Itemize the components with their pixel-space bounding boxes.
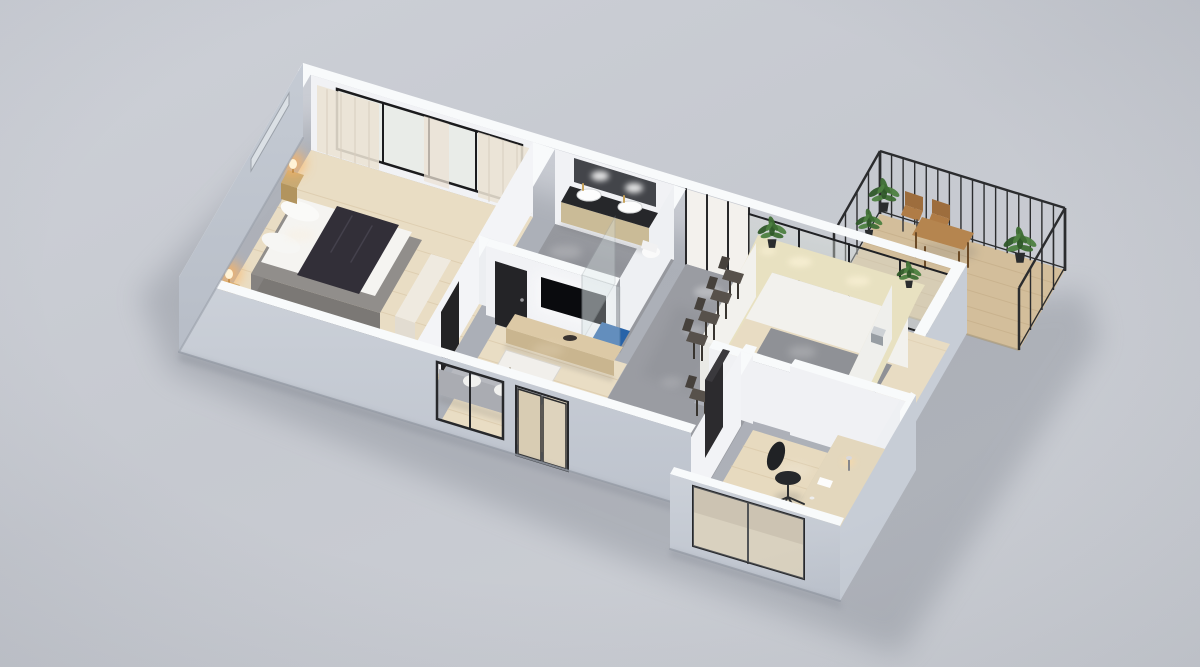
light-pool	[788, 346, 816, 358]
mirror-light	[625, 183, 643, 193]
floor-plan-svg	[0, 0, 1200, 667]
counter-light	[760, 247, 776, 255]
sofa-pillow	[463, 375, 481, 387]
mirror-light	[591, 171, 609, 181]
balcony-plant	[867, 177, 901, 212]
light-pool	[661, 377, 683, 387]
floor-plan-render	[0, 0, 1200, 667]
sink-basin	[577, 189, 601, 201]
light-pool	[285, 229, 315, 241]
curtain	[424, 116, 449, 189]
bowl	[563, 335, 577, 341]
light-pool	[550, 245, 582, 259]
slider-pane	[518, 389, 541, 461]
counter-light	[788, 257, 812, 267]
desk-lamp-head	[846, 456, 852, 460]
light-pool	[532, 343, 564, 357]
mouse	[810, 497, 815, 500]
office-chair-seat	[775, 471, 801, 485]
slider-pane	[543, 397, 566, 469]
counter-light	[846, 276, 870, 286]
door-handle	[520, 298, 524, 302]
sink-basin	[618, 201, 642, 213]
